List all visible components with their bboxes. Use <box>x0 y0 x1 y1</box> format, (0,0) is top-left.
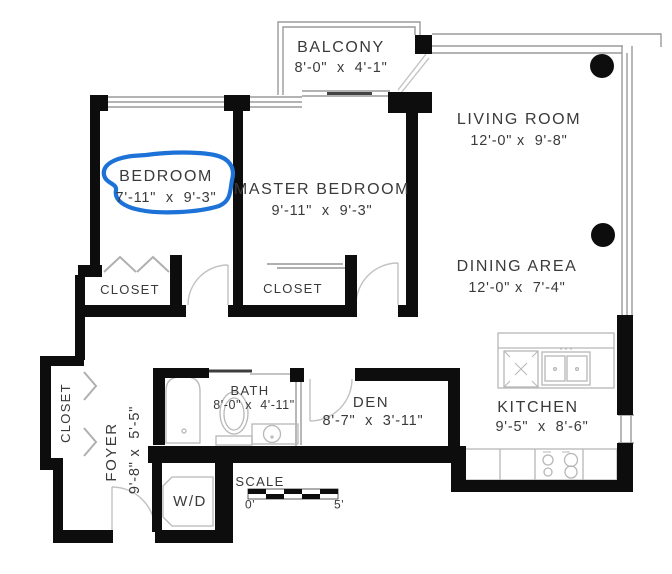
closet-label-master: CLOSET <box>263 282 323 296</box>
master-bedroom-door <box>356 263 398 305</box>
room-label-den: DEN <box>353 395 389 412</box>
scale-bar <box>248 489 338 499</box>
stove-icon <box>464 449 617 480</box>
room-dims-living-room: 12'-0" x 9'-8" <box>470 134 567 150</box>
room-label-dining-area: DINING AREA <box>457 258 578 276</box>
room-dims-den: 8'-7" x 3'-11" <box>323 414 424 430</box>
room-label-kitchen: KITCHEN <box>497 399 578 417</box>
room-label-bedroom: BEDROOM <box>119 168 213 186</box>
room-label-balcony: BALCONY <box>297 39 385 57</box>
room-dims-balcony: 8'-0" x 4'-1" <box>294 61 387 77</box>
scale-label: SCALE <box>235 475 284 489</box>
column-icon <box>590 54 614 78</box>
room-dims-bedroom: 7'-11" x 9'-3" <box>116 191 217 207</box>
columns <box>590 54 615 247</box>
windows-and-structure <box>108 22 661 446</box>
room-dims-kitchen: 9'-5" x 8'-6" <box>495 420 588 436</box>
room-dims-bath: 8'-0" x 4'-11" <box>213 399 294 413</box>
kitchen-counter-icon <box>498 333 614 388</box>
balcony-door <box>398 54 429 93</box>
column-icon <box>591 223 615 247</box>
laundry-label: W/D <box>173 494 207 511</box>
floor-plan: BALCONY 8'-0" x 4'-1" LIVING ROOM 12'-0"… <box>0 0 672 574</box>
room-label-foyer: FOYER <box>104 422 121 481</box>
scale-end-label: 5' <box>334 498 344 511</box>
room-label-bath: BATH <box>231 384 270 398</box>
room-dims-dining-area: 12'-0" x 7'-4" <box>468 281 565 297</box>
closet-label-foyer: CLOSET <box>59 383 73 443</box>
closet-label-bedroom: CLOSET <box>100 283 160 297</box>
bedroom-door <box>188 265 228 305</box>
scale-start-label: 0' <box>245 498 255 511</box>
room-dims-master-bedroom: 9'-11" x 9'-3" <box>272 204 373 220</box>
bathroom-sink-icon <box>252 424 298 444</box>
room-label-living-room: LIVING ROOM <box>457 111 581 129</box>
room-label-master-bedroom: MASTER BEDROOM <box>234 181 410 199</box>
room-dims-foyer: 9'-8" x 5'-5" <box>128 406 144 494</box>
bathtub-icon <box>166 377 200 443</box>
